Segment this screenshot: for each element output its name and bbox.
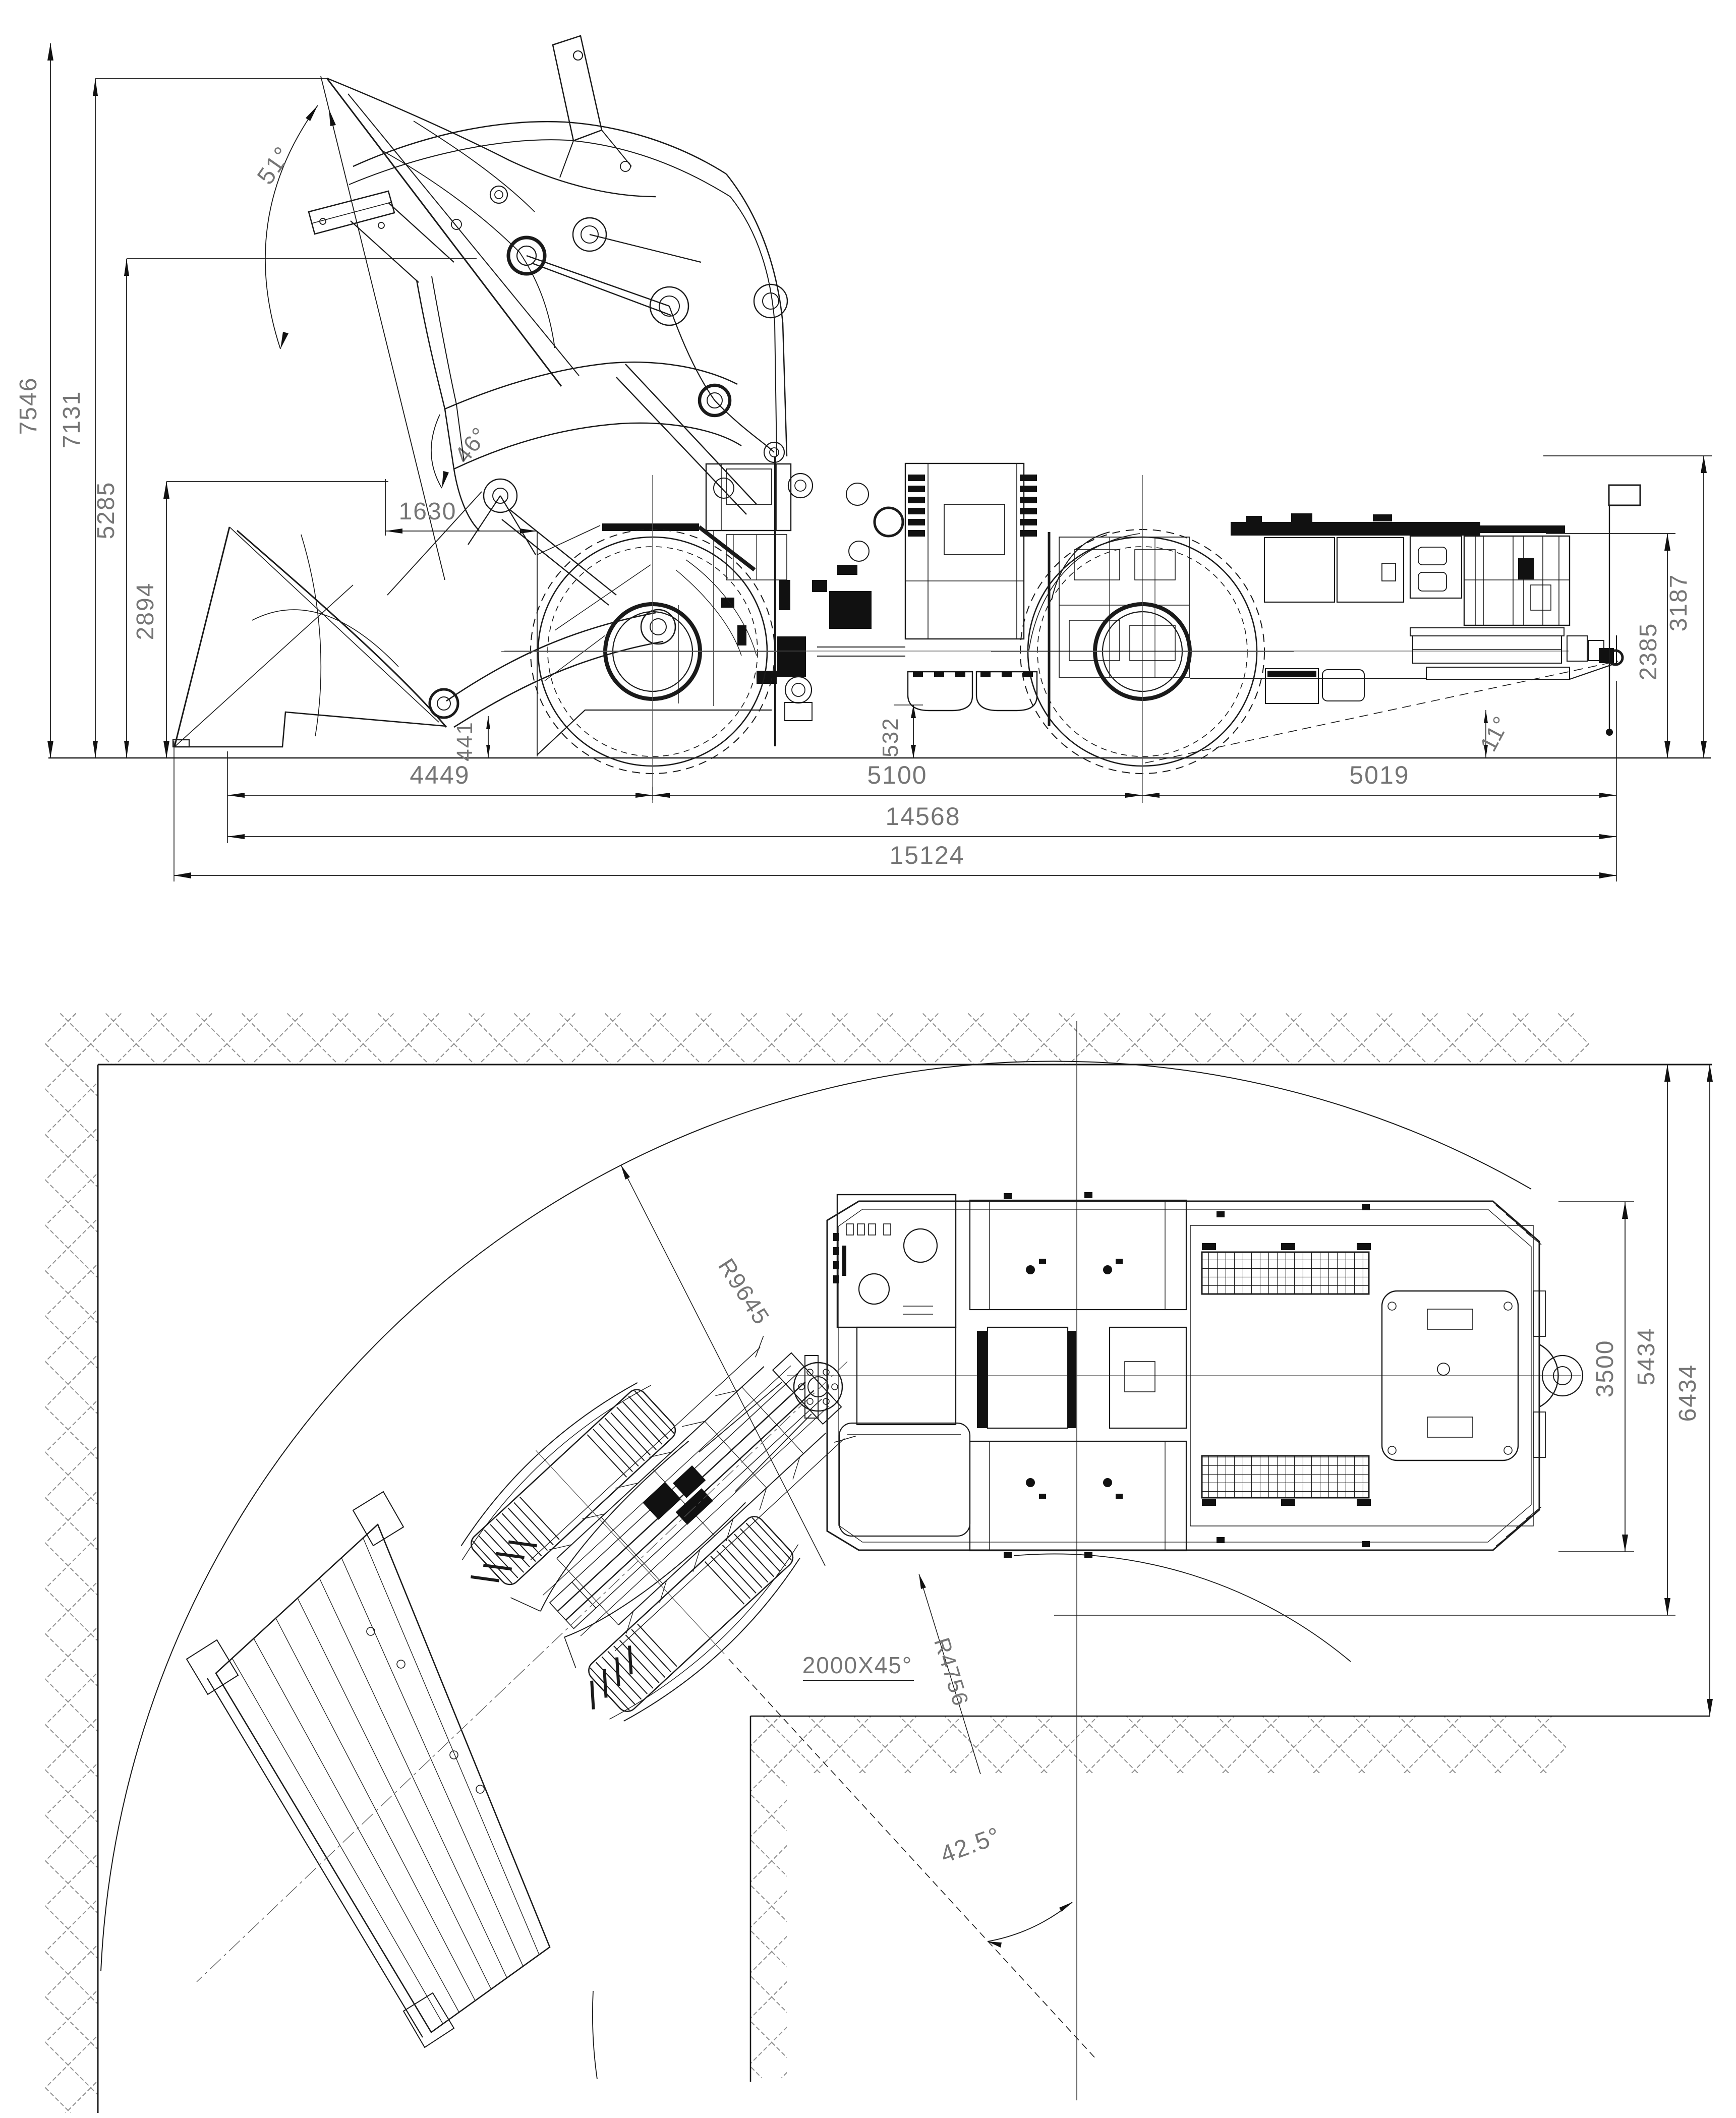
svg-text:15124: 15124 <box>889 841 964 869</box>
svg-text:532: 532 <box>878 717 903 757</box>
svg-text:4449: 4449 <box>410 761 470 789</box>
svg-text:14568: 14568 <box>885 802 960 831</box>
svg-text:3500: 3500 <box>1592 1340 1618 1398</box>
svg-text:5100: 5100 <box>867 761 927 789</box>
svg-text:441: 441 <box>452 721 477 761</box>
svg-text:6434: 6434 <box>1674 1364 1701 1422</box>
svg-text:2385: 2385 <box>1635 623 1662 681</box>
svg-text:5285: 5285 <box>93 482 120 540</box>
svg-text:2894: 2894 <box>132 582 159 640</box>
svg-text:5019: 5019 <box>1349 761 1409 789</box>
svg-text:2000X45°: 2000X45° <box>802 1652 913 1678</box>
svg-text:3187: 3187 <box>1665 574 1692 632</box>
svg-text:5434: 5434 <box>1633 1328 1660 1386</box>
svg-text:1630: 1630 <box>399 498 457 525</box>
svg-text:7546: 7546 <box>15 377 42 435</box>
svg-text:7131: 7131 <box>59 391 85 449</box>
